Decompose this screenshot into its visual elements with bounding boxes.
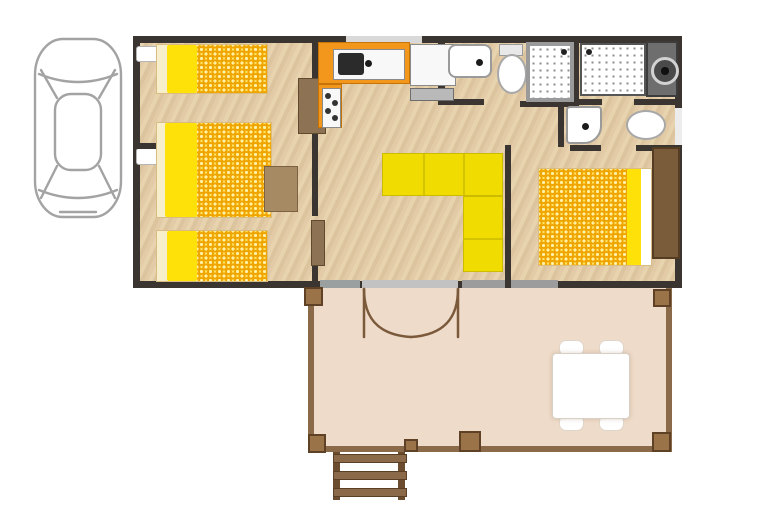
- kitchen-sink: [338, 53, 364, 75]
- bed-pillow: [165, 123, 197, 217]
- terrace-beam-left: [308, 288, 314, 452]
- right-wall-window: [675, 108, 682, 148]
- shower-drain: [586, 49, 592, 55]
- car-roof: [55, 94, 101, 170]
- terrace-ladder: [333, 452, 405, 500]
- terrace-post-mid-a: [404, 439, 418, 452]
- bed-duvet: [197, 231, 267, 281]
- ladder-rung: [333, 454, 407, 463]
- bedroom-wall-lower: [312, 266, 318, 288]
- shower-2: [580, 43, 646, 96]
- sofa-bench-top: [382, 153, 503, 196]
- bedside-desk: [264, 166, 298, 212]
- bed-duvet: [197, 45, 267, 93]
- french-door-swing: [361, 287, 461, 341]
- vanity-unit: [646, 41, 678, 97]
- sofa-seam: [464, 238, 502, 240]
- sofa-seam: [423, 154, 425, 195]
- wc-wall-top-b: [634, 99, 682, 105]
- door-arc-right: [411, 289, 458, 337]
- terrace-post-tl: [304, 287, 323, 306]
- corner-washbasin: [566, 106, 602, 144]
- bottom-window-left: [320, 280, 360, 288]
- toilet-1: [496, 44, 524, 92]
- car-windshield: [39, 74, 117, 82]
- terrace-post-bl: [308, 434, 326, 453]
- stove-burner: [325, 108, 331, 114]
- sofa-bench-side: [463, 196, 503, 272]
- car-body: [35, 39, 121, 217]
- single-bed-top: [156, 44, 268, 94]
- car-rear-window: [39, 190, 117, 198]
- round-washbasin: [651, 57, 679, 85]
- bed-duvet: [539, 169, 627, 265]
- stove-top: [322, 88, 341, 128]
- shower-1: [526, 42, 574, 102]
- bedroom-wall-middle: [312, 134, 318, 216]
- ladder-rung: [333, 471, 407, 480]
- stove-burner: [325, 93, 331, 99]
- bedroom-door-leaf: [311, 220, 325, 266]
- wardrobe: [652, 147, 680, 259]
- toilet-bowl: [497, 54, 527, 94]
- floor-plan-canvas: [0, 0, 767, 530]
- terrace-beam-right: [666, 288, 672, 452]
- wc-wall-left: [558, 101, 564, 147]
- bed-headboard: [641, 169, 651, 265]
- single-bed-bottom: [156, 230, 268, 282]
- kitchen-appliance: [410, 88, 454, 101]
- stove-burner: [332, 100, 338, 106]
- kitchen-counter-side: [318, 84, 342, 128]
- stove-burner: [332, 115, 338, 121]
- bed-pillow: [627, 169, 641, 265]
- wc-wall-top-a: [578, 99, 602, 105]
- sofa-seam: [463, 154, 465, 195]
- door-arc-left: [364, 289, 411, 337]
- double-bed-right: [538, 168, 652, 266]
- double-bed-left: [156, 122, 272, 218]
- bed-duvet: [197, 123, 271, 217]
- bed-pillow: [167, 45, 197, 93]
- toilet-2: [626, 110, 666, 140]
- terrace-post-br: [652, 432, 671, 452]
- living-bedroom-wall: [505, 145, 511, 288]
- kitchen-faucet: [365, 60, 372, 67]
- washbasin-1: [448, 44, 492, 78]
- kitchen-counter-top: [318, 42, 410, 84]
- kitchen-worktop: [333, 49, 405, 80]
- basin-faucet: [476, 59, 483, 66]
- shower-drain: [561, 49, 567, 55]
- bed-pillow: [167, 231, 197, 281]
- car-top-view-icon: [28, 32, 128, 224]
- car-pillar-fr: [99, 70, 115, 98]
- dining-table: [552, 353, 630, 419]
- terrace-post-tr: [653, 289, 671, 307]
- terrace-post-mid-b: [459, 431, 481, 452]
- basin-faucet: [582, 123, 589, 130]
- car-pillar-fl: [41, 70, 57, 98]
- right-bedroom-wall-a: [570, 145, 601, 151]
- ladder-rung: [333, 488, 407, 497]
